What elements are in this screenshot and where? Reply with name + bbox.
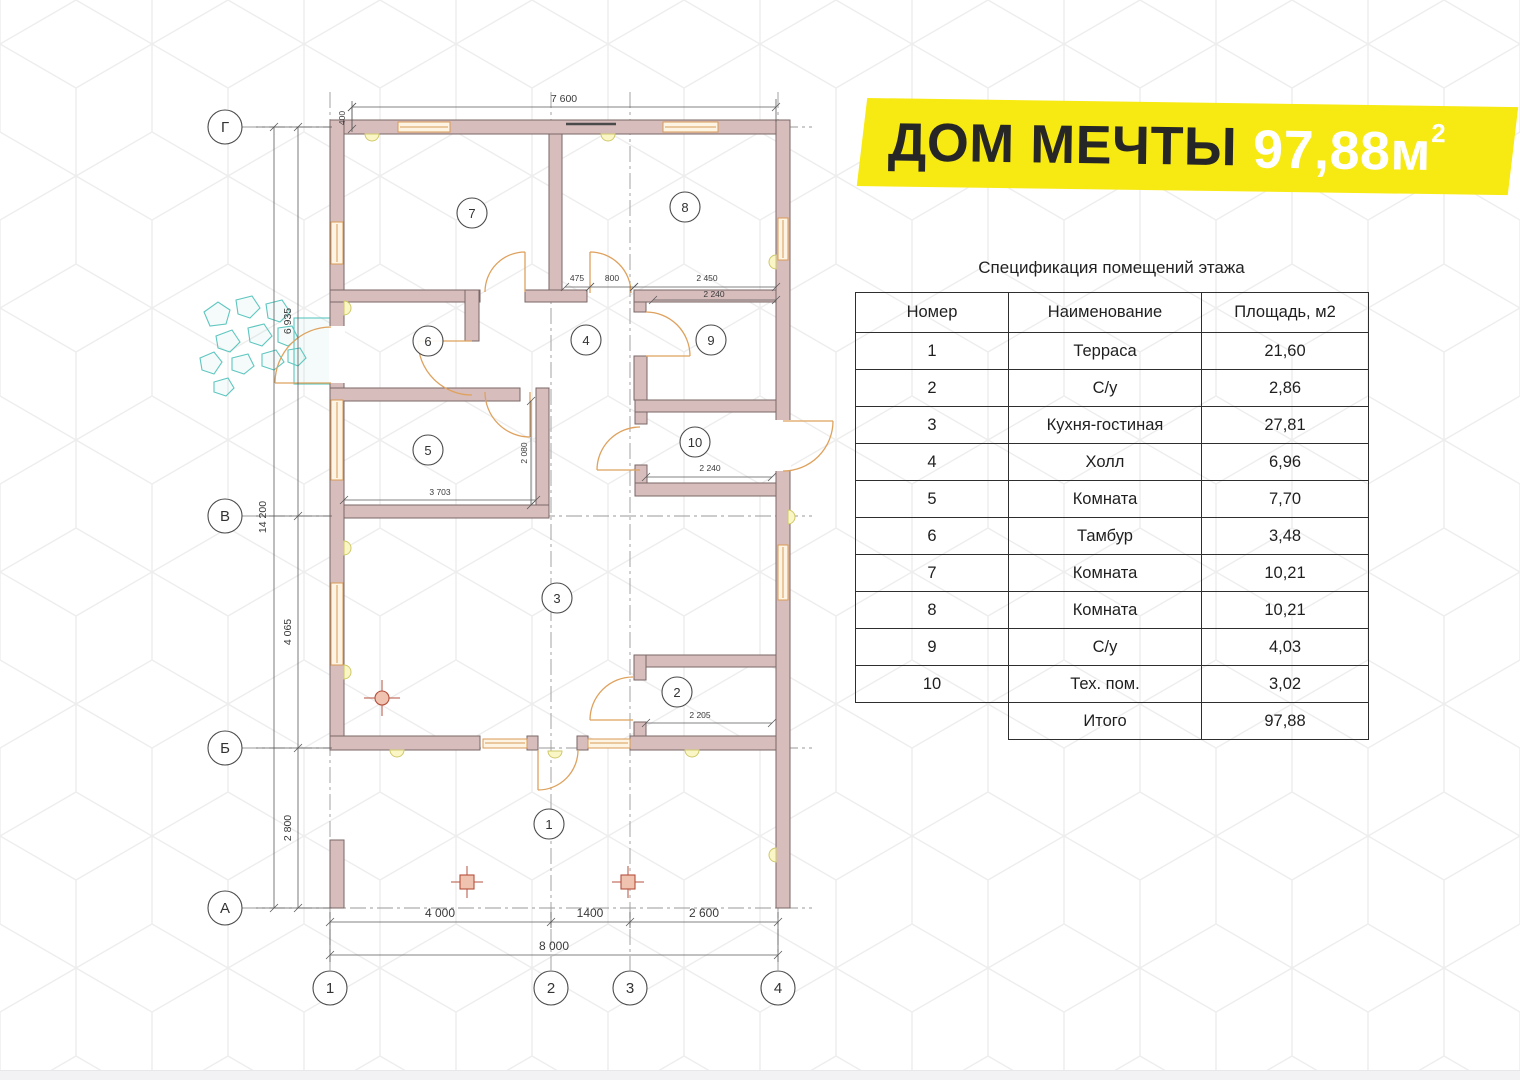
room-number-5: 5 xyxy=(424,443,431,458)
dim-left-vb: 4 065 xyxy=(282,619,294,645)
dim-left-ba: 2 800 xyxy=(282,815,294,841)
axis-row-v: В xyxy=(220,508,230,525)
spec-row: 5Комната7,70 xyxy=(856,481,1369,518)
spec-cell: Холл xyxy=(1009,444,1202,481)
spec-cell: 3,48 xyxy=(1202,518,1369,555)
spec-cell: Комната xyxy=(1009,555,1202,592)
spec-cell: 9 xyxy=(856,629,1009,666)
spec-cell: 7,70 xyxy=(1202,481,1369,518)
spec-row: 8Комната10,21 xyxy=(856,592,1369,629)
spec-row: 6Тамбур3,48 xyxy=(856,518,1369,555)
spec-table-body: 1Терраса21,602С/у2,863Кухня-гостиная27,8… xyxy=(856,333,1369,740)
axis-row-b: Б xyxy=(220,740,230,757)
axis-col-2: 2 xyxy=(547,980,555,997)
spec-cell: С/у xyxy=(1009,629,1202,666)
dim-bottom-total: 8 000 xyxy=(539,939,569,953)
axis-col-3: 3 xyxy=(626,980,634,997)
dim-hall-a: 475 xyxy=(570,273,584,283)
spec-cell: Комната xyxy=(1009,481,1202,518)
spec-cell: 3 xyxy=(856,407,1009,444)
room-number-1: 1 xyxy=(545,817,552,832)
spec-cell: 4,03 xyxy=(1202,629,1369,666)
spec-cell: 2,86 xyxy=(1202,370,1369,407)
spec-row: 1Терраса21,60 xyxy=(856,333,1369,370)
spec-table-title: Спецификация помещений этажа xyxy=(855,258,1368,278)
dim-bottom-34: 2 600 xyxy=(689,906,719,920)
spec-cell: 21,60 xyxy=(1202,333,1369,370)
footer-strip xyxy=(0,1070,1520,1080)
room-number-6: 6 xyxy=(424,334,431,349)
room-number-10: 10 xyxy=(688,435,702,450)
spec-cell: С/у xyxy=(1009,370,1202,407)
spec-row: 9С/у4,03 xyxy=(856,629,1369,666)
spec-cell: Терраса xyxy=(1009,333,1202,370)
spec-table: Номер Наименование Площадь, м2 1Терраса2… xyxy=(855,292,1369,740)
axis-row-a: А xyxy=(220,900,230,917)
axis-col-1: 1 xyxy=(326,980,334,997)
spec-cell: 10,21 xyxy=(1202,555,1369,592)
dim-left-gv: 6 935 xyxy=(282,308,294,334)
spec-total-row: Итого97,88 xyxy=(856,703,1369,740)
spec-cell: Тех. пом. xyxy=(1009,666,1202,703)
room-number-4: 4 xyxy=(582,333,589,348)
spec-col-name: Наименование xyxy=(1009,293,1202,333)
spec-cell: Комната xyxy=(1009,592,1202,629)
room-number-3: 3 xyxy=(553,591,560,606)
axis-col-4: 4 xyxy=(774,980,782,997)
spec-cell: 10 xyxy=(856,666,1009,703)
spec-row: 10Тех. пом.3,02 xyxy=(856,666,1369,703)
spec-cell: Тамбур xyxy=(1009,518,1202,555)
spec-row: 3Кухня-гостиная27,81 xyxy=(856,407,1369,444)
banner-area-value: 97,88м xyxy=(1253,119,1432,182)
spec-cell: 1 xyxy=(856,333,1009,370)
spec-col-area: Площадь, м2 xyxy=(1202,293,1369,333)
room-number-7: 7 xyxy=(468,206,475,221)
spec-cell: 3,02 xyxy=(1202,666,1369,703)
room-number-2: 2 xyxy=(673,685,680,700)
dim-bottom-23: 1400 xyxy=(577,906,604,920)
dim-room5-w: 3 703 xyxy=(429,487,451,497)
spec-cell: 6,96 xyxy=(1202,444,1369,481)
spec-cell: 5 xyxy=(856,481,1009,518)
dim-room10-w: 2 240 xyxy=(699,463,721,473)
spec-header-row: Номер Наименование Площадь, м2 xyxy=(856,293,1369,333)
dim-top-offset: 400 xyxy=(337,111,347,125)
spec-total-label: Итого xyxy=(1009,703,1202,740)
spec-cell: 7 xyxy=(856,555,1009,592)
spec-col-number: Номер xyxy=(856,293,1009,333)
spec-cell: Кухня-гостиная xyxy=(1009,407,1202,444)
spec-cell: 27,81 xyxy=(1202,407,1369,444)
spec-cell: 4 xyxy=(856,444,1009,481)
dim-left-total: 14 200 xyxy=(257,501,269,533)
spec-row: 7Комната10,21 xyxy=(856,555,1369,592)
dim-bottom-12: 4 000 xyxy=(425,906,455,920)
spec-cell: 10,21 xyxy=(1202,592,1369,629)
spec-row: 4Холл6,96 xyxy=(856,444,1369,481)
spec-total-value: 97,88 xyxy=(1202,703,1369,740)
title-banner: ДОМ МЕЧТЫ 97,88м2 xyxy=(857,98,1518,195)
dim-room5-h: 2 080 xyxy=(519,442,529,464)
room-number-8: 8 xyxy=(681,200,688,215)
dim-top-width: 7 600 xyxy=(551,93,577,105)
banner-title: ДОМ МЕЧТЫ xyxy=(888,111,1238,178)
dim-room9-w: 2 450 xyxy=(696,273,718,283)
dim-hall-b: 800 xyxy=(605,273,619,283)
poster: 7 600 400 6 935 4 065 2 800 14 200 4 000… xyxy=(0,0,1520,1080)
spec-cell: 2 xyxy=(856,370,1009,407)
spec-blank xyxy=(856,703,1009,740)
spec-cell: 8 xyxy=(856,592,1009,629)
banner-area-sup: 2 xyxy=(1431,117,1446,147)
axis-row-g: Г xyxy=(221,119,229,136)
spec-cell: 6 xyxy=(856,518,1009,555)
banner-area: 97,88м2 xyxy=(1253,115,1447,183)
spec-row: 2С/у2,86 xyxy=(856,370,1369,407)
dim-room2-w: 2 205 xyxy=(689,710,711,720)
room-number-9: 9 xyxy=(707,333,714,348)
dim-room9-w2: 2 240 xyxy=(703,289,725,299)
